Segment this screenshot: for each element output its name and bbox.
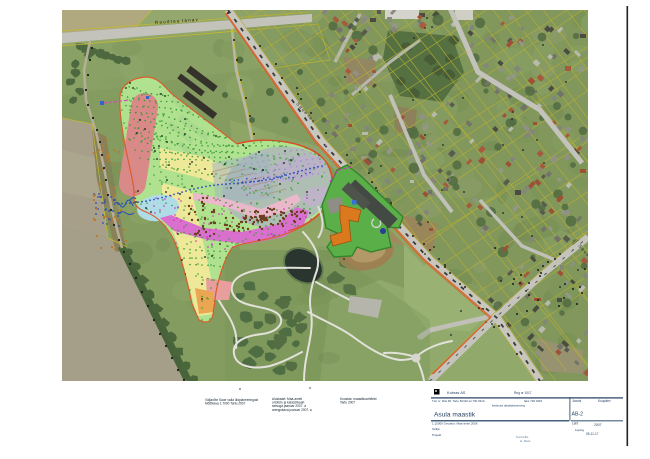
svg-text:Projekt: Projekt: [432, 433, 442, 437]
svg-text:faks 730 0315: faks 730 0315: [524, 399, 543, 403]
svg-text:Joonis: Joonis: [572, 399, 582, 403]
svg-text:H. Mets: H. Mets: [520, 439, 531, 443]
svg-text:Tartu 2007: Tartu 2007: [340, 401, 355, 405]
svg-text:2007: 2007: [594, 423, 602, 427]
svg-text:Leping: Leping: [575, 428, 584, 432]
svg-text:Töö nr: Riia 35, Tartu 50410 t: Töö nr: Riia 35, Tartu 50410 tel 730 031…: [432, 399, 485, 403]
svg-text:1:15000 Geoalus: Maa-amet 2006: 1:15000 Geoalus: Maa-amet 2006: [432, 422, 478, 426]
svg-text:Leht: Leht: [572, 422, 578, 426]
svg-text:05-11-17: 05-11-17: [586, 432, 599, 436]
svg-text:Asula maastik: Asula maastik: [434, 412, 476, 419]
svg-text:Reg nr 1017: Reg nr 1017: [514, 391, 532, 395]
svg-text:Mõõtkava 1:7000 Tartu 2007: Mõõtkava 1:7000 Tartu 2007: [205, 402, 246, 406]
svg-text:keskosa detailplaneering: keskosa detailplaneering: [492, 404, 525, 408]
svg-text:Kuupäev: Kuupäev: [598, 399, 611, 403]
svg-text:Tellija: Tellija: [432, 427, 440, 431]
svg-text:AB-2: AB-2: [572, 412, 584, 418]
svg-text:arengukava juanuar 2007. a: arengukava juanuar 2007. a: [272, 408, 312, 412]
svg-text:Kobras AS: Kobras AS: [447, 390, 466, 395]
